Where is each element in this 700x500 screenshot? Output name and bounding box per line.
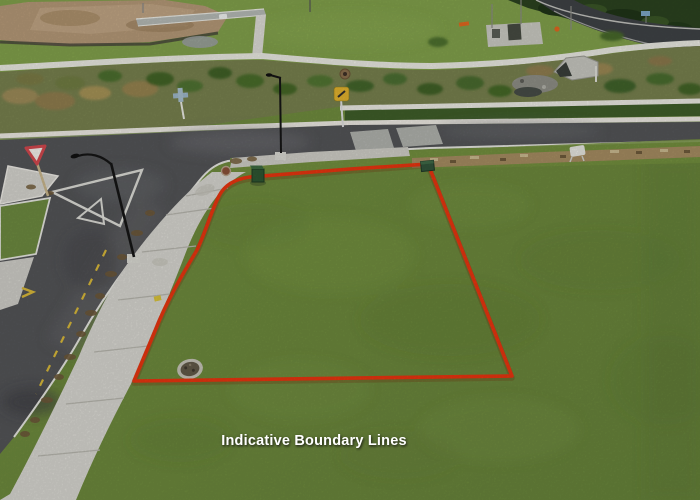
aerial-photo-canvas: [0, 0, 700, 500]
aerial-photo: Indicative Boundary Lines: [0, 0, 700, 500]
photo-grain: [0, 0, 700, 500]
boundary-disclaimer-label: Indicative Boundary Lines: [221, 433, 407, 449]
